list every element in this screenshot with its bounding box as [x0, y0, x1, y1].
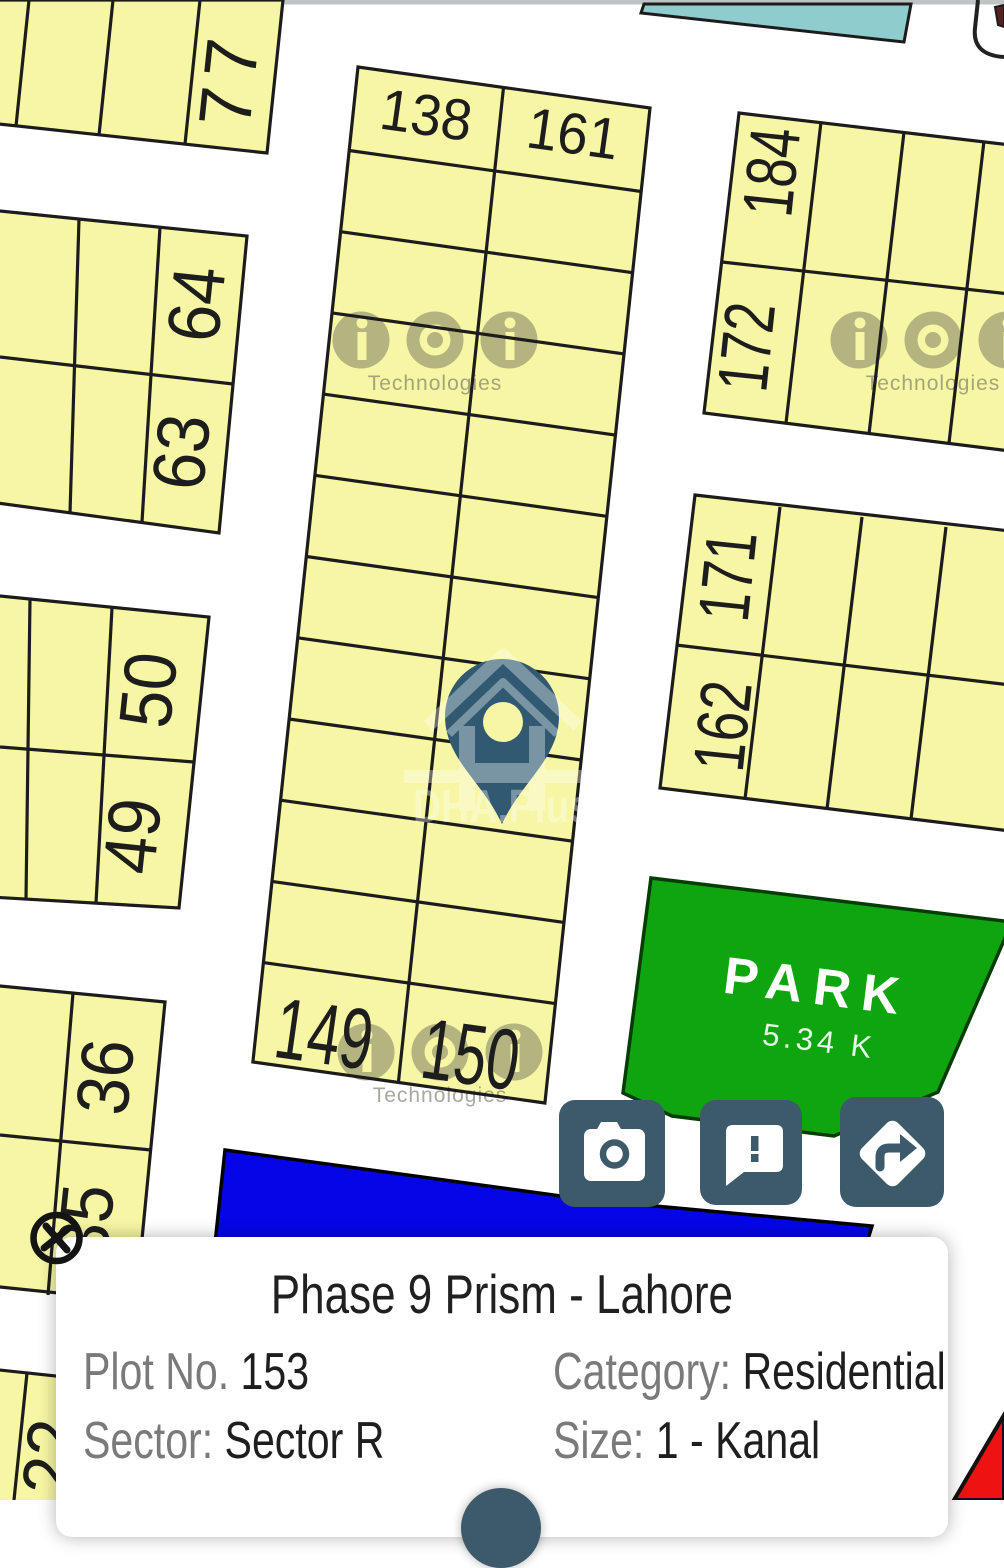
svg-text:Technologies: Technologies — [368, 372, 503, 395]
svg-text:171: 171 — [683, 527, 772, 625]
svg-text:64: 64 — [151, 262, 241, 345]
svg-text:184: 184 — [728, 124, 816, 221]
svg-text:77: 77 — [184, 25, 276, 130]
svg-text:150: 150 — [416, 999, 526, 1109]
svg-text:49: 49 — [87, 794, 177, 877]
svg-text:50: 50 — [103, 648, 193, 731]
svg-text:161: 161 — [523, 95, 623, 172]
svg-text:63: 63 — [136, 410, 226, 493]
svg-text:DHA.Plus: DHA.Plus — [413, 781, 591, 833]
svg-text:Technologies: Technologies — [866, 372, 1001, 395]
svg-text:172: 172 — [703, 299, 791, 396]
svg-text:138: 138 — [376, 77, 476, 154]
svg-text:149: 149 — [269, 979, 379, 1089]
svg-text:36: 36 — [60, 1035, 150, 1118]
svg-text:162: 162 — [678, 677, 767, 775]
